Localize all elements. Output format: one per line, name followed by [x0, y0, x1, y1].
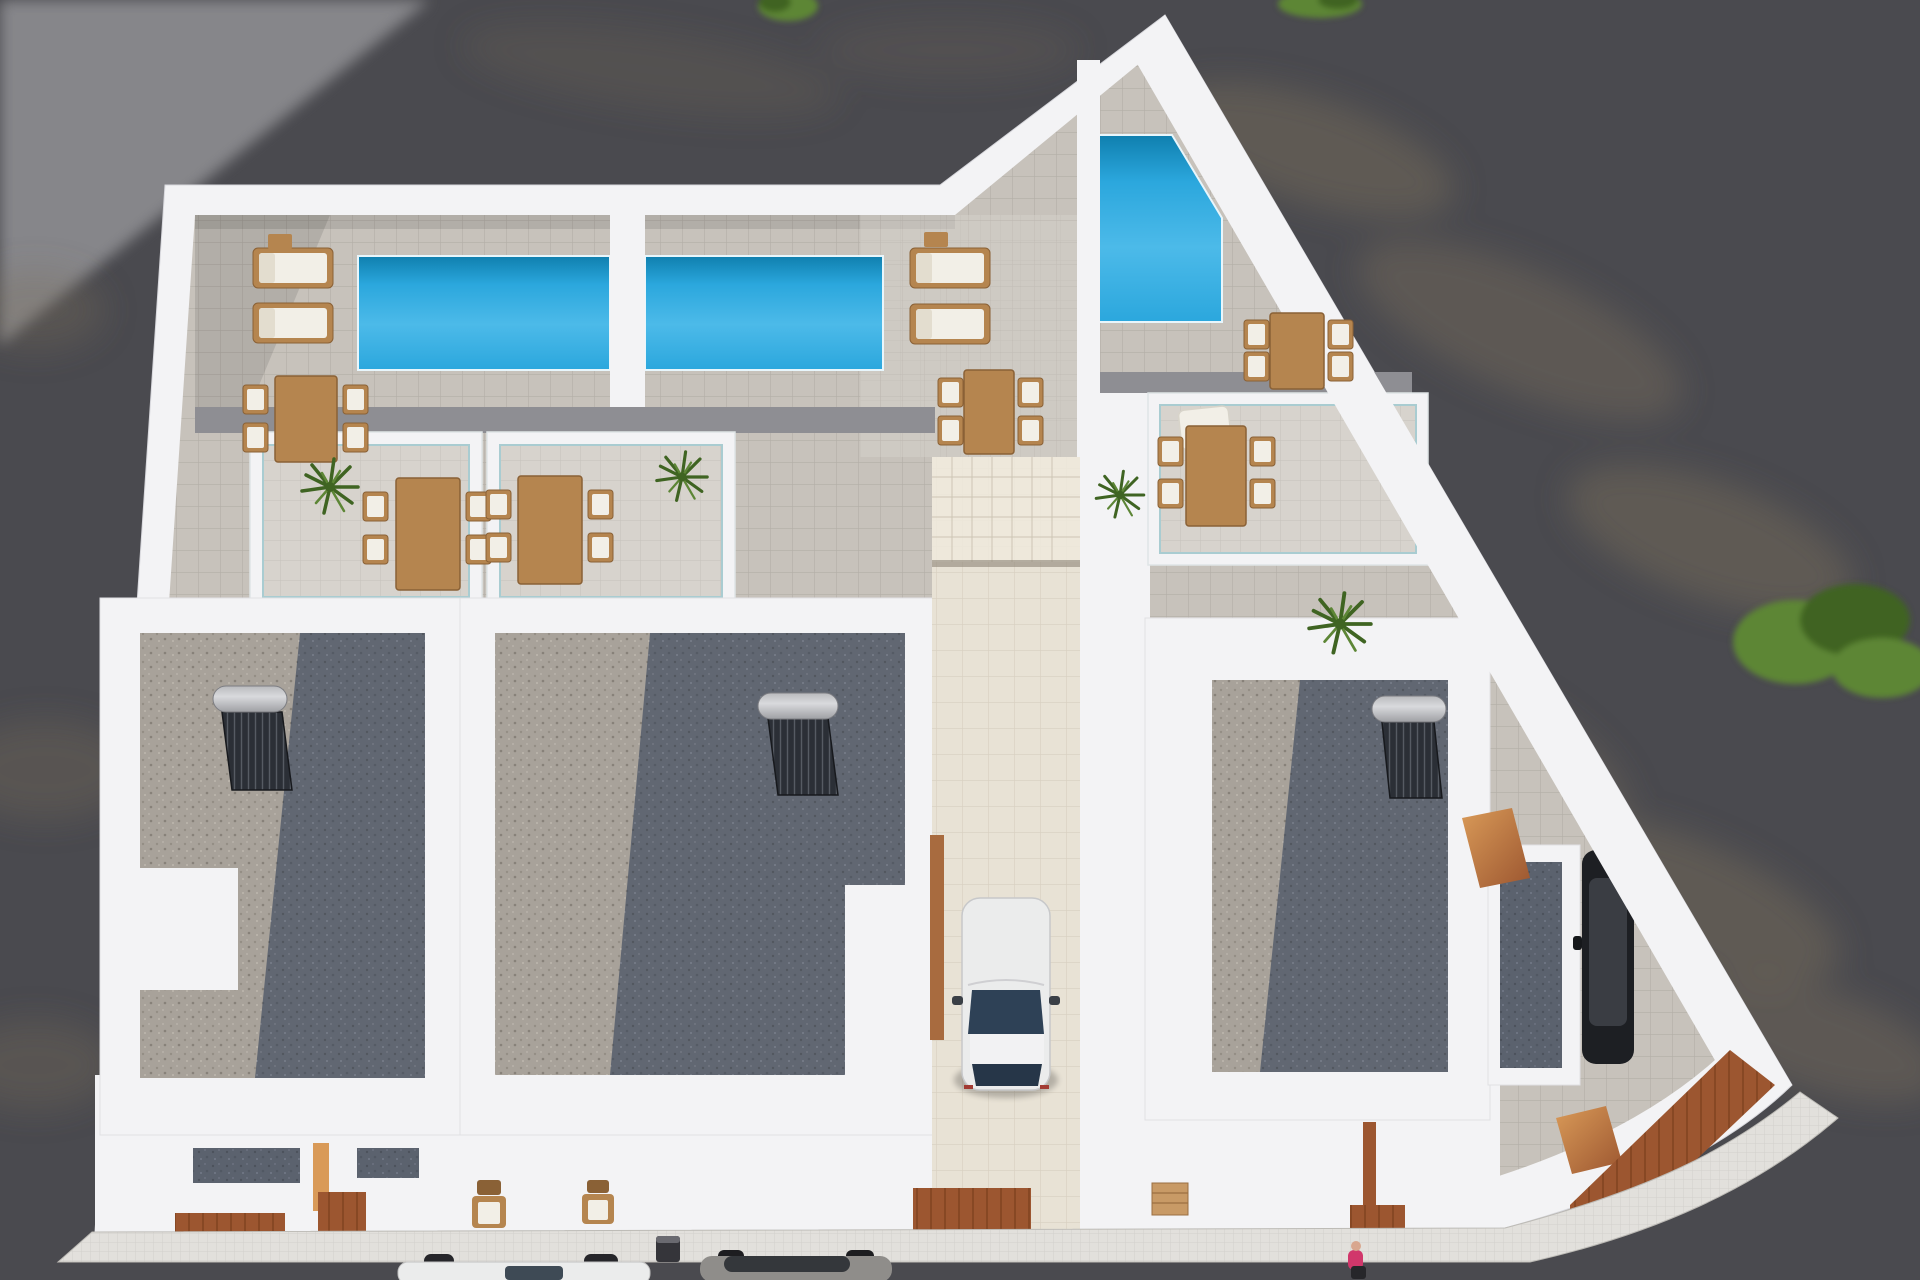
lounger-3 — [910, 248, 990, 288]
solar-cylinder-3 — [1372, 696, 1446, 722]
driveway-ramp — [932, 457, 1080, 562]
car-rear-window — [972, 1064, 1042, 1086]
lounger-4 — [910, 304, 990, 344]
car-taillight-right — [1040, 1085, 1049, 1089]
street-car-white-glass — [505, 1266, 563, 1280]
table-patio-2 — [518, 476, 582, 584]
car-mirror-left — [952, 996, 963, 1005]
trash-bin — [656, 1236, 680, 1262]
car-windshield — [968, 990, 1044, 1034]
driveway-side-wood-wall — [930, 835, 944, 1040]
table-right-upper — [1270, 313, 1324, 389]
driveway-car — [952, 898, 1060, 1090]
villa-roof-3 — [1145, 618, 1490, 1120]
aerial-render — [0, 0, 1920, 1280]
pool-divider-wall — [610, 213, 645, 409]
car-roof — [970, 1034, 1044, 1064]
front-chair-1 — [472, 1180, 506, 1228]
wall-shadow-top — [195, 215, 955, 229]
car-taillight-left — [964, 1085, 973, 1089]
lounger-1 — [253, 248, 333, 288]
villa-roof-2 — [460, 598, 935, 1135]
street-car-gray-glass — [724, 1256, 850, 1272]
lounger-2 — [253, 303, 333, 343]
pool-2 — [645, 256, 883, 370]
pool-1 — [358, 256, 610, 370]
driveway — [930, 457, 1080, 1232]
ramp-edge — [932, 560, 1080, 567]
render-stage: Aerial 3D render of seafront villa devel… — [0, 0, 1920, 1280]
entry-steps — [1152, 1183, 1188, 1215]
table-a — [275, 376, 337, 462]
lounger-side-table-1 — [268, 234, 292, 249]
front-balcony-gravel-2 — [357, 1148, 419, 1178]
driveway-deck — [913, 1188, 1031, 1230]
driveway-floor — [932, 457, 1080, 1232]
front-deck-2 — [318, 1192, 366, 1232]
right-wood-wall — [1363, 1122, 1376, 1212]
front-balcony-gravel-1 — [193, 1148, 300, 1183]
lounger-side-table-2 — [924, 232, 948, 247]
annex-roof-gravel — [1500, 862, 1562, 1068]
solar-cylinder-2 — [758, 693, 838, 719]
villa-roof-1 — [100, 598, 460, 1135]
table-right-patio — [1186, 426, 1246, 526]
black-car-mirror — [1573, 936, 1582, 950]
table-patio-1 — [396, 478, 460, 590]
pedestrian-head — [1351, 1241, 1361, 1251]
table-central — [964, 370, 1014, 454]
solar-cylinder-1 — [213, 686, 287, 712]
car-mirror-right — [1049, 996, 1060, 1005]
